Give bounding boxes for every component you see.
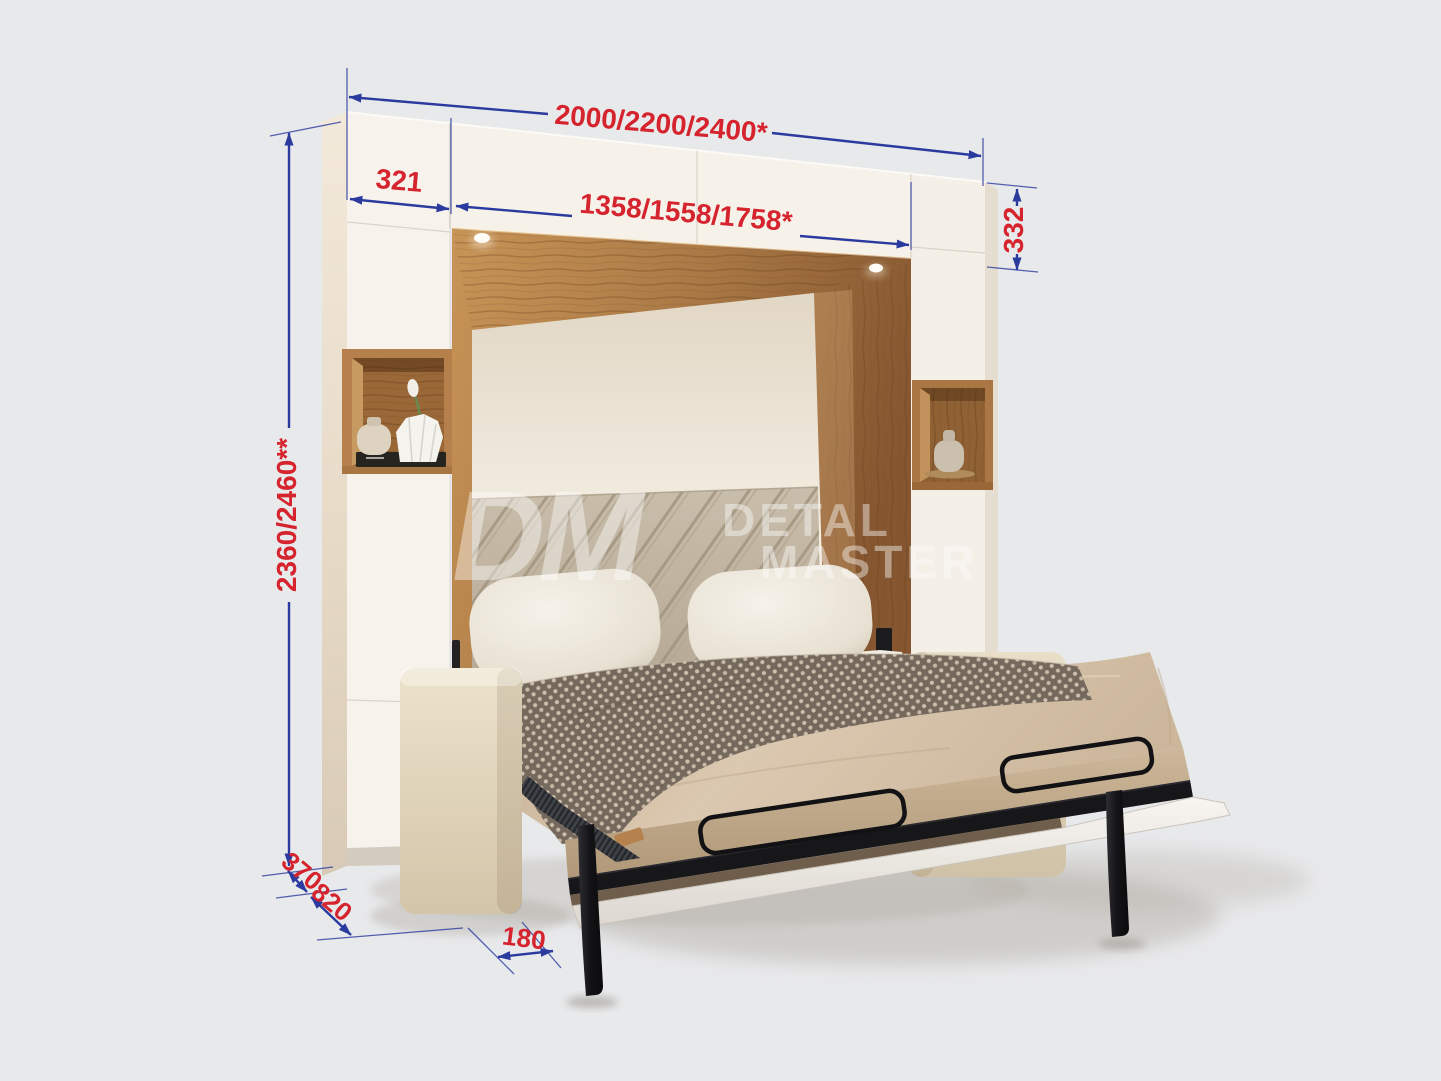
right-niche <box>912 380 993 490</box>
dim-left-column-width-label: 321 <box>374 163 423 198</box>
vase-lip <box>367 417 381 426</box>
book-spine-text <box>366 457 384 459</box>
left-armrest <box>400 668 522 914</box>
niche-top-shadow <box>352 358 444 372</box>
niche-shelf-lip <box>912 482 993 490</box>
dim-total-height-label: 2360/2460** <box>271 438 302 592</box>
wall-bed-dimension-diagram: DM DETAL MASTER 2000/2200/2400* 321 1358… <box>0 0 1441 1081</box>
vase-neck <box>943 430 955 442</box>
niche-shelf-lip <box>342 466 452 474</box>
vase <box>357 424 391 455</box>
left-side-panel <box>322 112 347 876</box>
spotlight-glow <box>865 265 887 277</box>
dim-top-cabinet-height-label: 332 <box>998 207 1029 254</box>
spotlight-glow <box>470 234 494 248</box>
diagram-canvas: DM DETAL MASTER 2000/2200/2400* 321 1358… <box>0 0 1441 1081</box>
dim-leg-inset-label: 180 <box>501 920 548 955</box>
watermark-monogram: DM <box>441 465 653 608</box>
watermark-line2: MASTER <box>760 536 978 588</box>
left-niche <box>342 349 452 474</box>
niche-side-light <box>920 388 930 482</box>
vase <box>934 440 964 472</box>
